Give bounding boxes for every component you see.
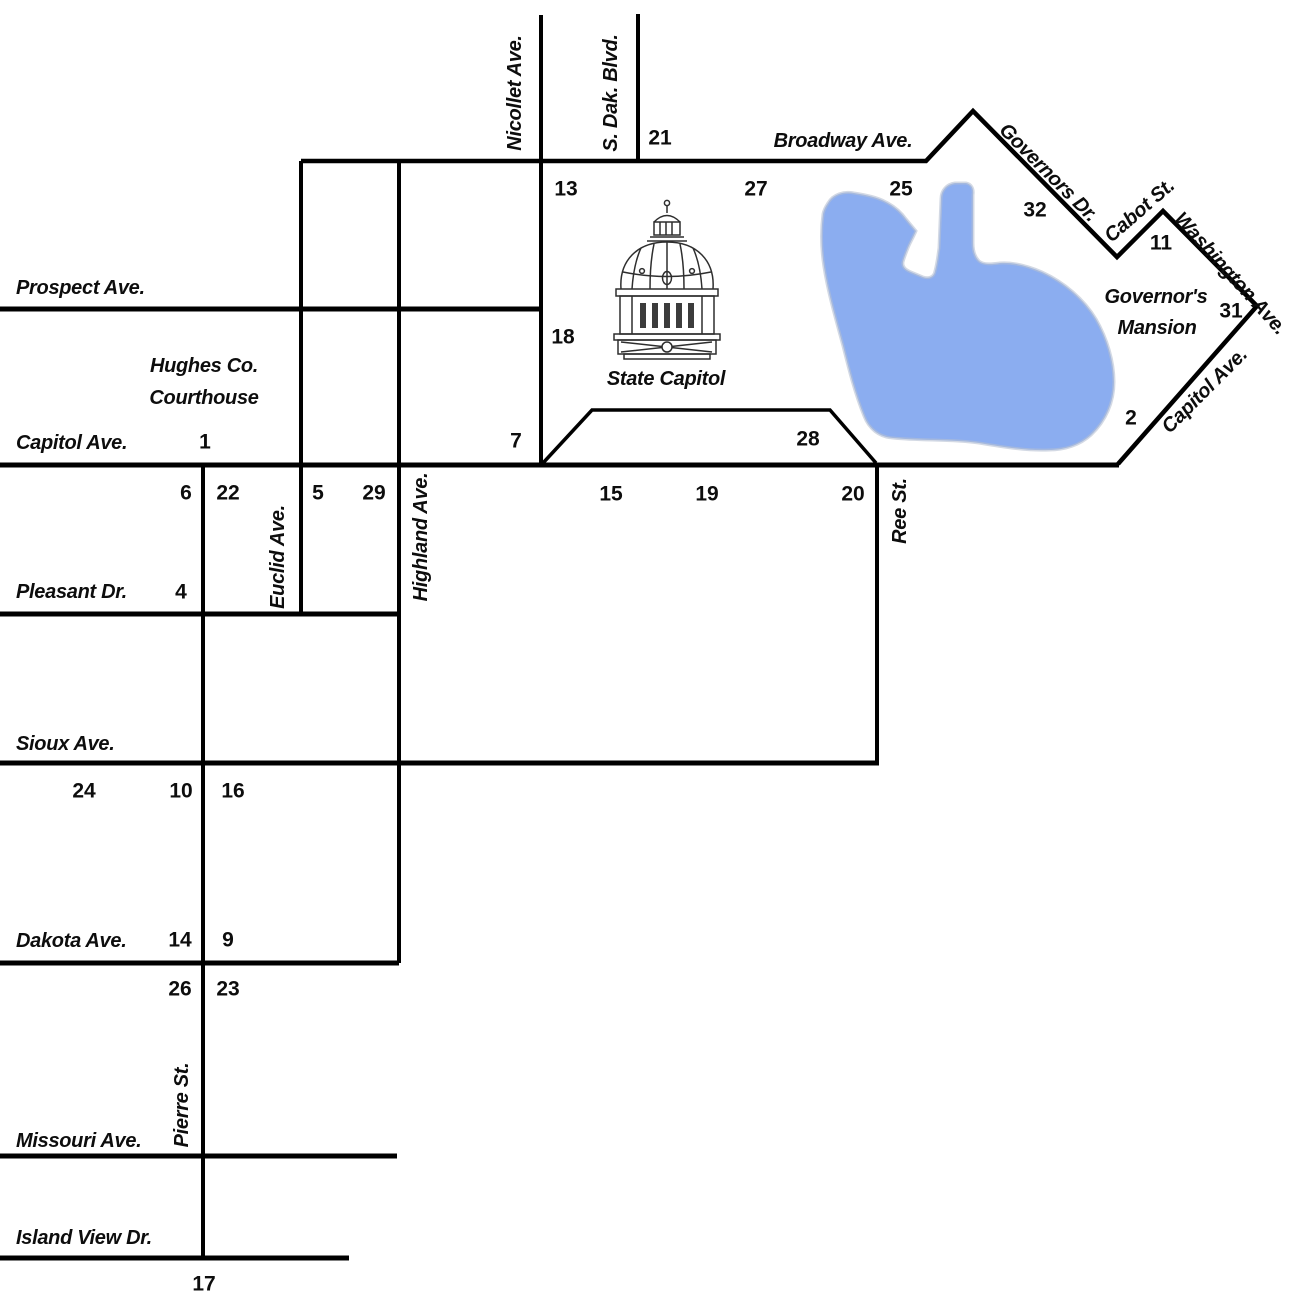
site-number-25: 25 [889,177,913,200]
site-number-13: 13 [554,177,577,200]
label-capitol-ave-west: Capitol Ave. [16,432,127,454]
label-hughes-courthouse-line1: Hughes Co. [150,355,258,377]
map-svg: Nicollet Ave.S. Dak. Blvd.Broadway Ave.G… [0,0,1308,1312]
street-labels-layer: Nicollet Ave.S. Dak. Blvd.Broadway Ave.G… [16,34,1291,1249]
label-state-capitol: State Capitol [607,368,726,390]
lake-layer [822,183,1114,450]
site-number-22: 22 [216,481,239,504]
site-number-31: 31 [1219,299,1243,322]
label-pierre-st: Pierre St. [171,1063,193,1148]
site-number-26: 26 [168,977,191,1000]
site-number-24: 24 [72,779,96,802]
site-number-29: 29 [362,481,385,504]
label-governors-dr: Governors Dr. [995,119,1102,226]
site-number-1: 1 [199,430,211,453]
site-number-27: 27 [744,177,767,200]
site-number-23: 23 [216,977,239,1000]
site-number-28: 28 [796,427,820,450]
label-prospect-ave: Prospect Ave. [16,277,145,299]
label-capitol-ave-diagonal: Capitol Ave. [1158,344,1252,438]
label-sioux-ave: Sioux Ave. [16,733,115,755]
label-s-dak-blvd: S. Dak. Blvd. [600,34,622,151]
site-number-15: 15 [599,482,623,505]
label-island-view-dr: Island View Dr. [16,1227,152,1249]
label-hughes-courthouse-line2: Courthouse [149,387,258,409]
label-pleasant-dr: Pleasant Dr. [16,581,127,603]
site-number-6: 6 [180,481,192,504]
state-capitol-illustration [614,200,720,359]
street-map: Nicollet Ave.S. Dak. Blvd.Broadway Ave.G… [0,0,1308,1312]
site-number-18: 18 [551,325,575,348]
site-number-14: 14 [168,928,192,951]
capitol-lake [822,183,1114,450]
label-governors-mansion-line2: Mansion [1117,317,1196,339]
site-number-20: 20 [841,482,864,505]
label-ree-st: Ree St. [889,478,911,544]
label-euclid-ave: Euclid Ave. [267,505,289,609]
street-capitol-grounds-trapezoid [543,410,876,463]
site-number-10: 10 [169,779,192,802]
site-number-21: 21 [648,126,672,149]
label-highland-ave: Highland Ave. [410,473,432,602]
label-dakota-ave: Dakota Ave. [16,930,126,952]
site-number-5: 5 [312,481,324,504]
site-number-11: 11 [1150,231,1173,254]
site-number-17: 17 [192,1272,215,1295]
site-number-4: 4 [175,580,187,603]
label-nicollet-ave: Nicollet Ave. [504,35,526,150]
label-governors-mansion-line1: Governor's [1105,286,1208,308]
label-broadway-ave: Broadway Ave. [774,130,913,152]
site-number-32: 32 [1023,198,1046,221]
site-number-2: 2 [1125,406,1137,429]
capitol-finial [664,200,669,205]
site-number-9: 9 [222,928,234,951]
site-number-19: 19 [695,482,718,505]
site-number-16: 16 [221,779,244,802]
label-missouri-ave: Missouri Ave. [16,1130,141,1152]
site-number-7: 7 [510,429,522,452]
